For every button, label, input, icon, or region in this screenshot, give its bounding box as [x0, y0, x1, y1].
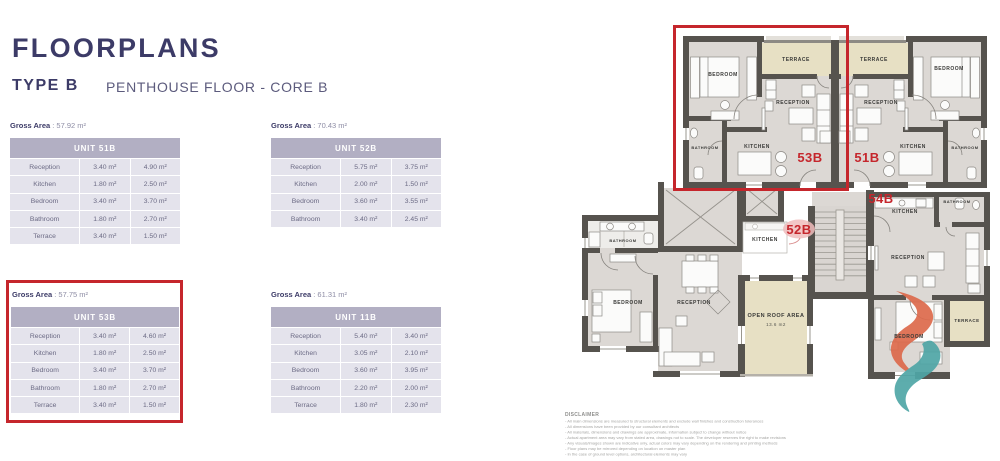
svg-text:RECEPTION: RECEPTION	[776, 100, 810, 106]
svg-text:OPEN ROOF AREA: OPEN ROOF AREA	[748, 313, 805, 319]
svg-text:TERRACE: TERRACE	[954, 318, 979, 323]
svg-text:RECEPTION: RECEPTION	[891, 255, 925, 261]
svg-text:TERRACE: TERRACE	[860, 57, 888, 63]
svg-text:54B: 54B	[868, 191, 893, 206]
svg-text:13.6 m2: 13.6 m2	[766, 322, 786, 327]
svg-text:BEDROOM: BEDROOM	[708, 72, 738, 78]
svg-text:DISCLAIMER: DISCLAIMER	[565, 412, 599, 418]
svg-text:BATHROOM: BATHROOM	[691, 145, 718, 150]
svg-text:BEDROOM: BEDROOM	[613, 300, 643, 306]
svg-text:BEDROOM: BEDROOM	[894, 334, 924, 340]
svg-text:BATHROOM: BATHROOM	[943, 199, 970, 204]
svg-text:KITCHEN: KITCHEN	[892, 209, 918, 215]
svg-text:RECEPTION: RECEPTION	[864, 100, 898, 106]
svg-text:- Any visuals/images shown ar: - Any visuals/images shown are indicativ…	[565, 441, 778, 446]
svg-text:- Floor plans may be mirrored: - Floor plans may be mirrored depending …	[565, 446, 685, 451]
svg-text:RECEPTION: RECEPTION	[677, 300, 711, 306]
svg-text:- Actual apartment area may v: - Actual apartment area may vary from st…	[565, 435, 786, 440]
svg-text:TERRACE: TERRACE	[782, 57, 810, 63]
svg-text:53B: 53B	[797, 150, 822, 165]
svg-text:- In the case of ground level: - In the case of ground level options, a…	[565, 452, 687, 457]
svg-text:BATHROOM: BATHROOM	[609, 238, 636, 243]
svg-text:- All materials, dimensions a: - All materials, dimensions and drawings…	[565, 430, 747, 435]
svg-text:- All main dimensions are mea: - All main dimensions are measured to st…	[565, 419, 763, 424]
svg-text:BATHROOM: BATHROOM	[951, 145, 978, 150]
svg-text:BEDROOM: BEDROOM	[934, 66, 964, 72]
svg-text:51B: 51B	[854, 150, 879, 165]
svg-text:52B: 52B	[786, 222, 811, 237]
svg-text:KITCHEN: KITCHEN	[744, 144, 770, 150]
svg-text:KITCHEN: KITCHEN	[752, 237, 778, 243]
svg-text:KITCHEN: KITCHEN	[900, 144, 926, 150]
svg-text:- All dimensions have been pr: - All dimensions have been provided by o…	[565, 424, 679, 429]
